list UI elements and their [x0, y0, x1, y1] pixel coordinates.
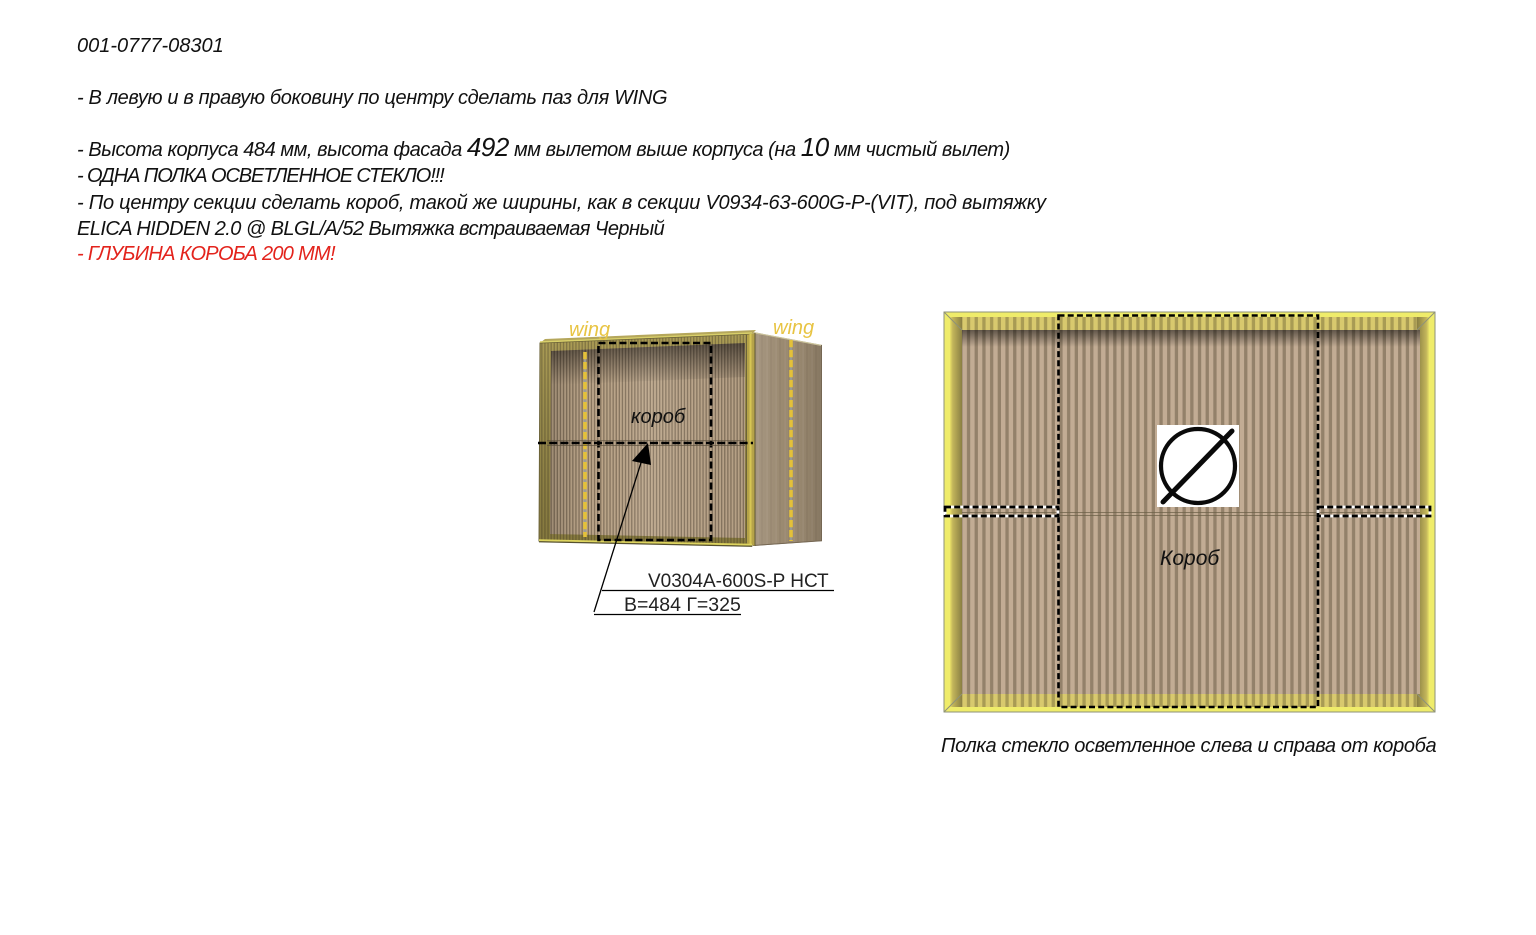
svg-text:Короб: Короб [1160, 547, 1220, 570]
svg-text:короб: короб [631, 406, 686, 428]
svg-text:wing: wing [773, 317, 814, 339]
svg-text:В=484 Г=325: В=484 Г=325 [624, 594, 741, 616]
svg-text:wing: wing [569, 319, 610, 341]
svg-text:V0304A-600S-P НСТ: V0304A-600S-P НСТ [648, 571, 829, 592]
